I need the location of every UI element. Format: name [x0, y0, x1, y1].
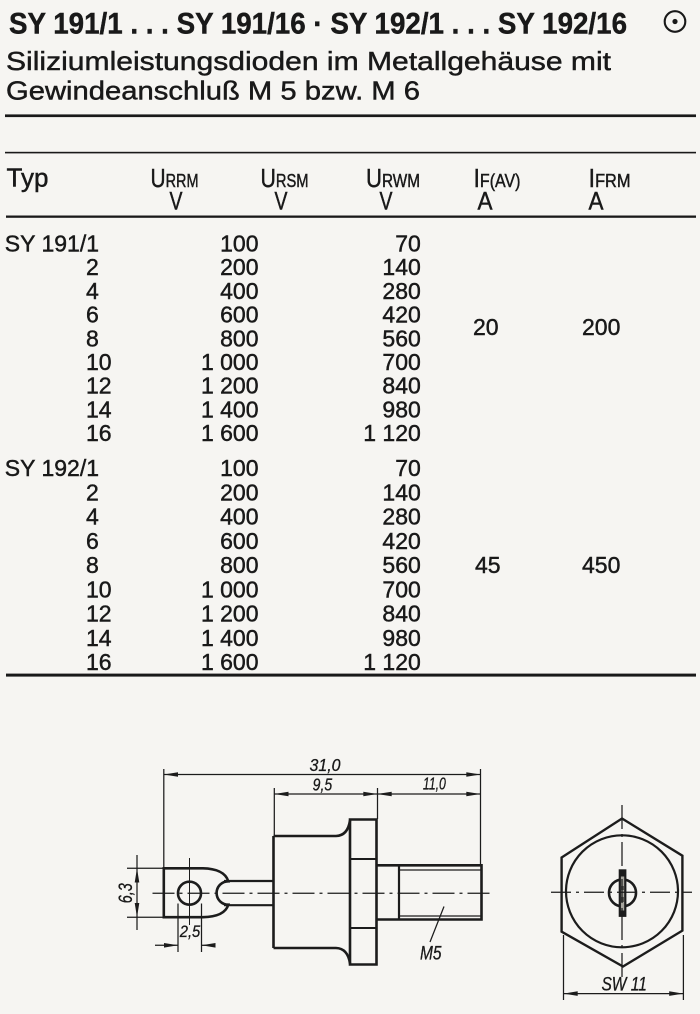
svg-text:1 400: 1 400	[201, 625, 259, 651]
svg-text:SY 191/1: SY 191/1	[5, 231, 99, 257]
svg-text:A: A	[589, 188, 604, 216]
svg-text:560: 560	[382, 552, 420, 578]
svg-text:140: 140	[382, 479, 420, 505]
svg-text:70: 70	[395, 231, 421, 257]
svg-text:16: 16	[86, 649, 112, 675]
svg-text:45: 45	[475, 552, 501, 578]
svg-text:4: 4	[86, 278, 99, 304]
svg-text:6: 6	[86, 528, 99, 554]
svg-text:1 600: 1 600	[201, 649, 259, 675]
svg-text:1 600: 1 600	[201, 420, 259, 446]
svg-text:140: 140	[382, 254, 420, 280]
svg-text:V: V	[275, 188, 288, 216]
svg-text:1 200: 1 200	[201, 601, 259, 627]
svg-text:1 200: 1 200	[201, 373, 259, 399]
svg-text:31,0: 31,0	[310, 755, 341, 775]
svg-text:200: 200	[582, 314, 620, 340]
svg-text:70: 70	[395, 455, 421, 481]
svg-text:560: 560	[382, 325, 420, 351]
svg-text:8: 8	[86, 552, 99, 578]
svg-text:400: 400	[220, 278, 258, 304]
svg-text:2: 2	[86, 479, 99, 505]
svg-text:1 000: 1 000	[201, 349, 259, 375]
svg-text:450: 450	[582, 552, 620, 578]
svg-text:12: 12	[86, 373, 112, 399]
svg-text:10: 10	[86, 576, 112, 602]
svg-text:840: 840	[382, 601, 420, 627]
svg-text:1 120: 1 120	[363, 420, 421, 446]
svg-text:SY 192/1: SY 192/1	[5, 455, 99, 481]
svg-text:100: 100	[220, 231, 258, 257]
svg-text:1 400: 1 400	[201, 396, 259, 422]
svg-text:M5: M5	[420, 943, 442, 964]
svg-text:700: 700	[382, 349, 420, 375]
svg-text:280: 280	[382, 504, 420, 530]
svg-text:16: 16	[86, 420, 112, 446]
svg-text:200: 200	[220, 254, 258, 280]
svg-text:700: 700	[382, 576, 420, 602]
svg-text:V: V	[380, 188, 393, 216]
svg-text:20: 20	[473, 314, 499, 340]
svg-text:SW 11: SW 11	[601, 974, 647, 995]
svg-text:10: 10	[86, 349, 112, 375]
svg-text:4: 4	[86, 504, 99, 530]
svg-text:V: V	[170, 188, 183, 216]
svg-text:8: 8	[86, 325, 99, 351]
svg-text:420: 420	[382, 528, 420, 554]
svg-text:A: A	[478, 188, 493, 216]
svg-text:14: 14	[86, 396, 112, 422]
svg-text:200: 200	[220, 479, 258, 505]
svg-text:400: 400	[220, 504, 258, 530]
svg-text:1 000: 1 000	[201, 576, 259, 602]
svg-text:800: 800	[220, 552, 258, 578]
svg-text:980: 980	[382, 396, 420, 422]
svg-text:840: 840	[382, 373, 420, 399]
svg-text:SY 191/1 . . . SY 191/16 · SY: SY 191/1 . . . SY 191/16 · SY 192/1 . . …	[9, 8, 627, 41]
svg-text:Gewindeanschluß M 5 bzw. M 6: Gewindeanschluß M 5 bzw. M 6	[6, 76, 420, 106]
svg-text:280: 280	[382, 278, 420, 304]
svg-text:9,5: 9,5	[313, 775, 333, 795]
svg-text:Siliziumleistungsdioden im Met: Siliziumleistungsdioden im Metallgehäuse…	[6, 46, 612, 76]
svg-text:420: 420	[382, 302, 420, 328]
svg-text:980: 980	[382, 625, 420, 651]
svg-text:Typ: Typ	[7, 163, 49, 193]
svg-text:100: 100	[220, 455, 258, 481]
svg-text:1 120: 1 120	[363, 649, 421, 675]
svg-text:600: 600	[220, 302, 258, 328]
svg-text:14: 14	[86, 625, 112, 651]
svg-text:6: 6	[86, 302, 99, 328]
svg-text:12: 12	[86, 601, 112, 627]
svg-text:800: 800	[220, 325, 258, 351]
svg-text:2,5: 2,5	[179, 922, 201, 941]
svg-text:11,0: 11,0	[423, 774, 446, 794]
svg-text:6,3: 6,3	[116, 883, 137, 903]
svg-text:2: 2	[86, 254, 99, 280]
svg-text:600: 600	[220, 528, 258, 554]
